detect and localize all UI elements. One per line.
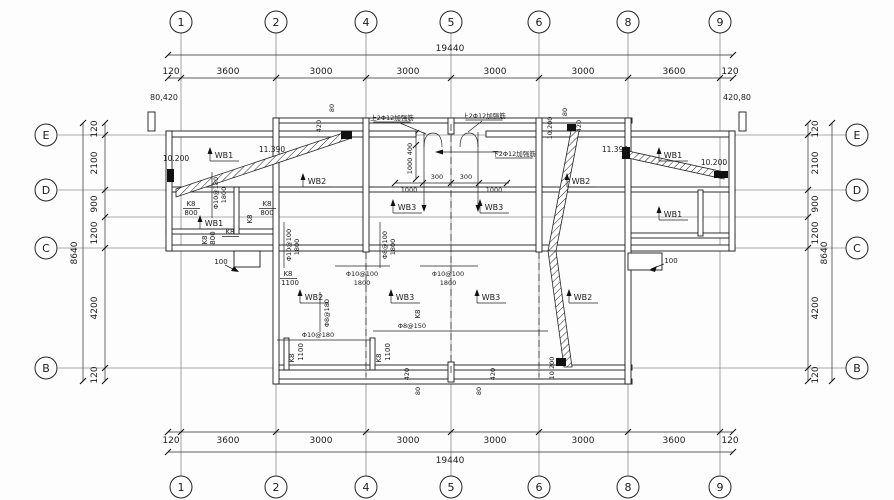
dim-label: 2100: [90, 151, 100, 174]
plan-label: K8: [375, 353, 383, 362]
wall-d: [166, 187, 735, 192]
notch-left: [234, 251, 260, 267]
grid-bubble-label: C: [853, 242, 861, 255]
axes-and-dimensions: 11224455668899EEDDCCBB120360030003000300…: [35, 11, 868, 498]
slab-flag-arrow: [567, 289, 572, 296]
slab-flag-arrow: [657, 206, 662, 213]
plan-label: 1000: [401, 186, 418, 194]
grid-bubble-label: 2: [273, 481, 280, 494]
slab-flag-arrow: [391, 199, 396, 206]
dim-label: 2100: [811, 151, 821, 174]
dim-label: 3000: [572, 67, 595, 77]
plan-label: Φ8@180: [323, 299, 331, 327]
plan-label: 1100: [297, 343, 305, 361]
plan-label: 1100: [281, 279, 299, 287]
slab-flag-arrow: [301, 173, 306, 180]
dim-label: 3600: [663, 436, 686, 446]
plan-label: 上2Φ12加强筋: [462, 111, 506, 120]
slab-flag-arrow: [475, 289, 480, 296]
plan-label: 80: [414, 387, 422, 395]
plan-label: 80: [475, 387, 483, 395]
slab-flag-arrow: [198, 215, 203, 222]
grid-bubble-label: 5: [448, 481, 455, 494]
wall-partition-left: [234, 187, 239, 234]
plan-label: 400: [406, 143, 414, 155]
dim-label-total: 19440: [436, 456, 465, 466]
dim-label: 900: [90, 195, 100, 212]
slab-label: WB3: [396, 293, 415, 302]
slab-label: WB2: [572, 177, 591, 186]
slab-label: WB3: [482, 293, 501, 302]
plan-label: 300: [460, 173, 472, 181]
dim-label: 120: [90, 120, 100, 137]
slab-label: WB3: [485, 203, 504, 212]
plan-label: 420: [575, 120, 583, 132]
grid-bubble-label: C: [42, 242, 50, 255]
dim-note: 80,420: [150, 93, 178, 102]
grid-bubble-label: 4: [363, 481, 370, 494]
plan-label: 800: [209, 231, 217, 244]
plan-label: 1800: [354, 279, 371, 287]
slab-flag-arrow: [208, 147, 213, 154]
plan-label: 1800: [220, 187, 228, 204]
dim-label: 120: [162, 436, 179, 446]
grid-bubble-label: E: [854, 129, 861, 142]
grid-bubble-label: 5: [448, 16, 455, 29]
plan-label: K8: [225, 228, 234, 236]
grid-bubble-label: 6: [536, 16, 543, 29]
grid-bubble-label: 6: [536, 481, 543, 494]
dim-label: 3000: [484, 67, 507, 77]
plan-label: 1100: [384, 343, 392, 361]
grid-bubble-label: 8: [625, 16, 632, 29]
plan-label: 下2Φ12加强筋: [492, 149, 536, 158]
plan-label: K8: [201, 235, 209, 244]
wall-left-outer: [166, 131, 172, 251]
floor-plan-drawing: 11224455668899EEDDCCBB120360030003000300…: [0, 0, 894, 500]
wall-e-left: [166, 131, 416, 137]
wall-rightwing-inner: [628, 233, 735, 238]
plan-label: 11.390: [602, 145, 628, 154]
plan-label: 10.200: [546, 117, 554, 140]
plan-label: Φ10@100: [285, 229, 293, 261]
dim-label: 3600: [217, 67, 240, 77]
plan-label: Φ10@100: [346, 270, 378, 278]
porch-stub-right: [739, 112, 746, 131]
dim-label-total: 19440: [436, 44, 465, 54]
dim-label: 120: [721, 436, 738, 446]
wall-grid4: [363, 118, 369, 252]
grid-bubble-label: 4: [363, 16, 370, 29]
plan-label: K8: [283, 270, 292, 278]
wall-partition-right: [698, 190, 703, 236]
plan-label: 300: [431, 173, 443, 181]
plan-label: K8: [288, 353, 296, 362]
dim-label: 900: [811, 195, 821, 212]
plan-label: 1000: [406, 158, 414, 175]
wall-grid6: [536, 118, 542, 252]
slab-label: WB1: [205, 219, 224, 228]
plan-label: 80: [328, 104, 336, 112]
plan-label: 11.390: [259, 145, 285, 154]
plan-label: 100: [664, 257, 677, 265]
slab-label: WB1: [664, 151, 683, 160]
dim-label-total: 8640: [70, 241, 80, 264]
grid-bubble-label: 9: [717, 481, 724, 494]
dim-label: 3000: [397, 436, 420, 446]
plan-label: 1800: [389, 239, 397, 256]
slab-label: WB2: [305, 293, 324, 302]
slab-flag-arrow: [657, 147, 662, 154]
plan-label: 80: [561, 108, 569, 116]
notch-right: [628, 253, 662, 270]
dim-label: 1200: [90, 221, 100, 244]
slab-flag-arrow: [389, 289, 394, 296]
dim-label: 3600: [663, 67, 686, 77]
dim-label-total: 8640: [820, 241, 830, 264]
dim-label: 3000: [484, 436, 507, 446]
column-mark: [556, 358, 566, 366]
grid-bubble-label: 9: [717, 16, 724, 29]
dim-label: 4200: [90, 296, 100, 319]
grid-bubble-label: 8: [625, 481, 632, 494]
dim-label: 3000: [397, 67, 420, 77]
slab-label: WB2: [308, 177, 327, 186]
grid-bubble-label: D: [42, 184, 50, 197]
dim-label: 3000: [572, 436, 595, 446]
grid-bubble-label: B: [853, 362, 861, 375]
plan-label: Φ10@180: [212, 177, 220, 209]
porch-stub-left: [148, 112, 155, 131]
slab-label: WB2: [574, 293, 593, 302]
dim-label: 120: [721, 67, 738, 77]
plan-label: 10.200: [163, 154, 189, 163]
column-mark: [714, 171, 728, 178]
dim-label: 3000: [310, 67, 333, 77]
dim-label: 4200: [811, 296, 821, 319]
slab-label: WB3: [398, 203, 417, 212]
walls: [148, 112, 746, 384]
structural-plan-svg: 11224455668899EEDDCCBB120360030003000300…: [0, 0, 894, 500]
column-mark: [341, 131, 352, 139]
wall-e-right: [486, 131, 735, 137]
grid-bubble-label: D: [853, 184, 861, 197]
wall-c: [166, 245, 735, 251]
plan-label: 800: [184, 209, 197, 217]
stair-long-lower: [548, 251, 572, 367]
plan-label: K8: [262, 200, 271, 208]
dim-label: 120: [811, 366, 821, 383]
grid-bubble-label: 1: [178, 481, 185, 494]
plan-label: 1000: [486, 186, 503, 194]
plan-label: 100: [214, 258, 227, 266]
plan-label: K8: [186, 200, 195, 208]
plan-label: 420: [403, 368, 411, 380]
grid-bubble-label: 2: [273, 16, 280, 29]
plan-label: 420: [489, 368, 497, 380]
dim-label: 3600: [217, 436, 240, 446]
plan-label: Φ10@100: [432, 270, 464, 278]
plan-label: K8: [246, 214, 254, 223]
plan-label: Φ8@100: [381, 231, 389, 259]
grid-bubble-label: E: [43, 129, 50, 142]
slab-flag-arrow: [298, 289, 303, 296]
slab-label: WB1: [215, 151, 234, 160]
grid-bubble-label: B: [42, 362, 50, 375]
arrow-left: [435, 150, 443, 155]
plan-label: 1800: [293, 239, 301, 256]
dim-label: 1200: [811, 221, 821, 244]
slab-label: WB1: [664, 210, 683, 219]
plan-label: 10.200: [548, 357, 556, 380]
plan-label: 10.200: [701, 158, 727, 167]
wall-leftwing-inner: [166, 229, 276, 234]
dim-label: 120: [162, 67, 179, 77]
plan-label: Φ10@180: [302, 331, 334, 339]
wall-right-outer: [729, 131, 735, 251]
dim-label: 120: [90, 366, 100, 383]
plan-label: K8: [414, 309, 422, 318]
arrow-down: [422, 205, 427, 212]
dim-note: 420,80: [723, 93, 751, 102]
dim-label: 3000: [310, 436, 333, 446]
dim-label: 120: [811, 120, 821, 137]
column-mark: [167, 169, 174, 182]
plan-label: Φ8@150: [398, 322, 426, 330]
plan-label: 420: [315, 120, 323, 132]
plan-label: 800: [260, 209, 273, 217]
plan-label: 1800: [440, 279, 457, 287]
plan-label: 上2Φ12加强筋: [370, 113, 414, 122]
grid-bubble-label: 1: [178, 16, 185, 29]
